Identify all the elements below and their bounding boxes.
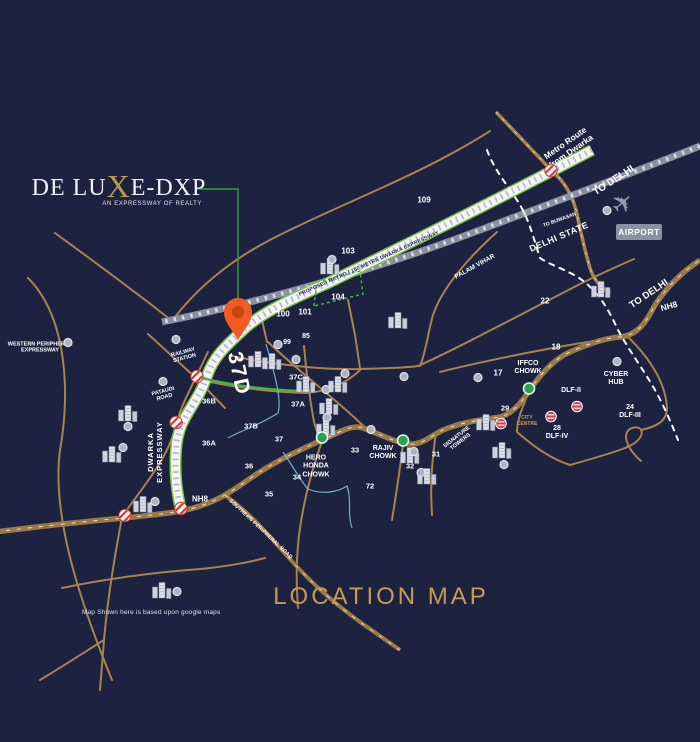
poi-dot-icon [118, 440, 129, 458]
building-icon [295, 374, 317, 398]
poi-dot-icon [291, 352, 302, 370]
poi-dot-icon [158, 374, 169, 392]
map-disclaimer: Map Shown here is based upon google maps [82, 609, 220, 616]
chowk-junction-icon [315, 430, 330, 450]
poi-dot-icon [327, 252, 338, 270]
location-map: DE LUXE-DXP AN EXPRESSWAY OF REALTY ✈ AI… [0, 0, 700, 742]
poi-dot-icon [340, 366, 351, 384]
chowk-junction-icon [396, 433, 411, 453]
location-pin-icon [216, 294, 260, 346]
rail-crossing-icon [173, 501, 189, 522]
building-icon [590, 279, 612, 303]
chowk-junction-icon [522, 381, 537, 401]
poi-dot-icon [399, 369, 410, 387]
poi-dot-icon [612, 354, 623, 372]
poi-dot-icon [171, 332, 182, 350]
airport-badge: AIRPORT [616, 224, 662, 240]
rail-crossing-icon [543, 163, 559, 184]
poi-dot-icon [123, 419, 134, 437]
metro-station-icon [571, 400, 584, 418]
rail-crossing-icon [189, 369, 205, 390]
map-title: LOCATION MAP [250, 583, 512, 611]
building-icon [151, 580, 173, 604]
building-icon [387, 310, 409, 334]
metro-station-icon [545, 410, 558, 428]
brand-x-glyph: X [107, 168, 131, 204]
poi-dot-icon [322, 410, 333, 428]
poi-dot-icon [366, 422, 377, 440]
brand-title: DE LUXE-DXP [30, 168, 208, 200]
poi-dot-icon [321, 382, 332, 400]
poi-dot-icon [150, 494, 161, 512]
poi-dot-icon [499, 457, 510, 475]
poi-dot-icon [273, 337, 284, 355]
metro-station-icon [495, 417, 508, 435]
poi-dot-icon [63, 335, 74, 353]
rail-crossing-icon [117, 508, 133, 529]
poi-dot-icon [416, 465, 427, 483]
poi-dot-icon [602, 203, 613, 221]
poi-dot-icon [172, 584, 183, 602]
brand-logo: DE LUXE-DXP AN EXPRESSWAY OF REALTY [30, 168, 208, 207]
poi-dot-icon [473, 370, 484, 388]
rail-crossing-icon [168, 415, 184, 436]
